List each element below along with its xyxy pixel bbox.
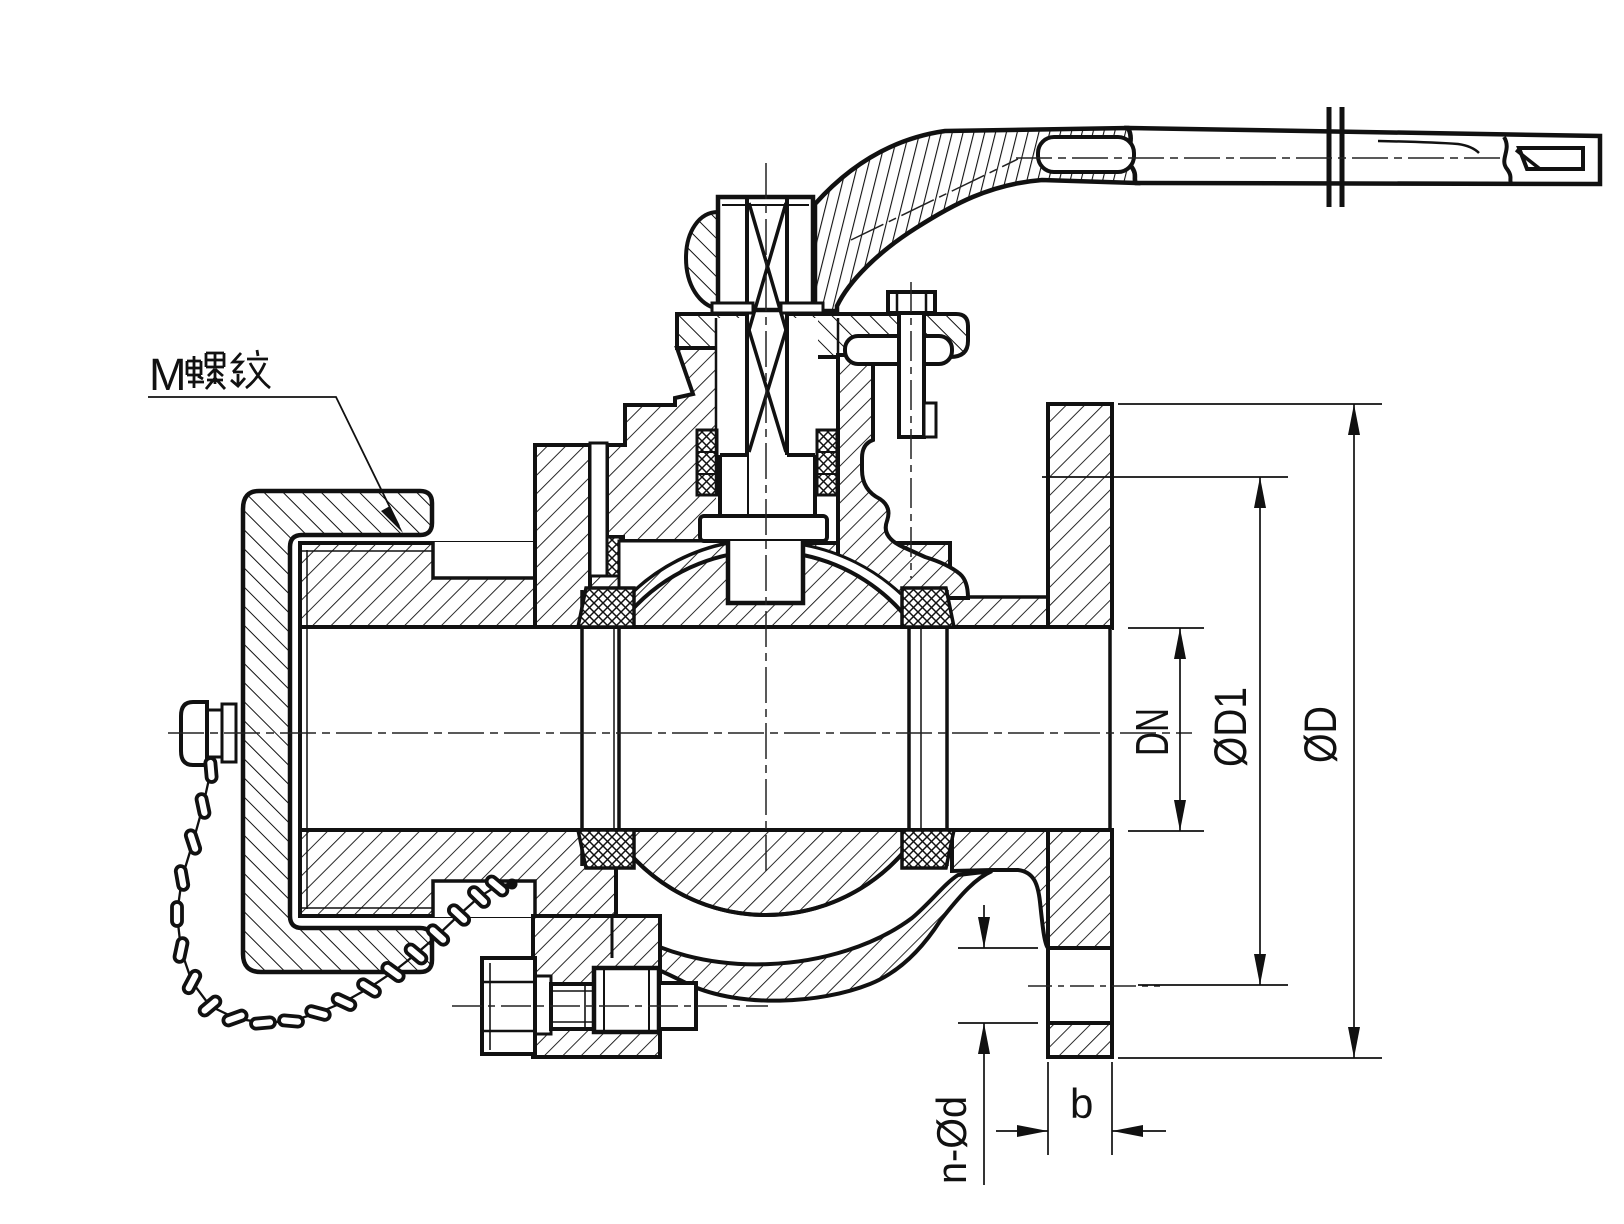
svg-text:ØD: ØD [1295, 706, 1346, 763]
svg-text:M: M [149, 349, 187, 400]
svg-text:b: b [1070, 1080, 1093, 1127]
svg-text:ØD1: ØD1 [1205, 687, 1256, 767]
svg-text:DN: DN [1126, 708, 1178, 756]
svg-text:n-Ød: n-Ød [928, 1096, 975, 1184]
